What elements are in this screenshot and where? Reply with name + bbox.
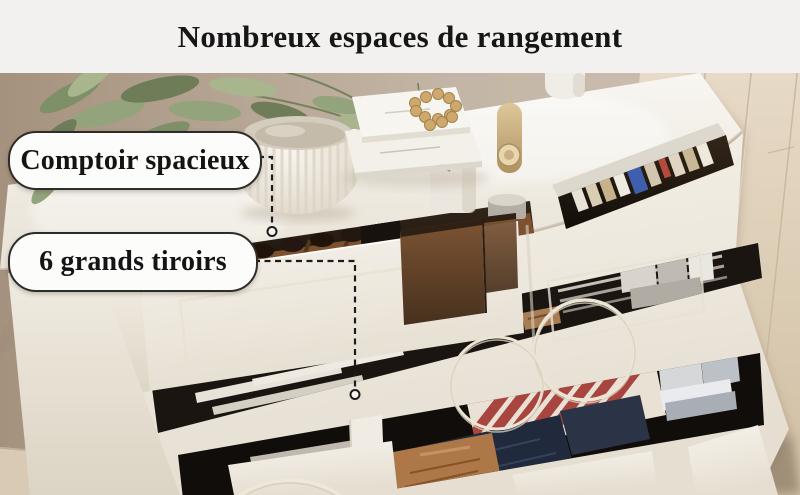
product-image: Nombreux espaces de rangement <box>0 0 800 495</box>
callout-tiroirs-label: 6 grands tiroirs <box>39 246 227 278</box>
white-vase <box>545 73 585 99</box>
callout-comptoir-label: Comptoir spacieux <box>20 145 249 177</box>
callout-6-grands-tiroirs: 6 grands tiroirs <box>8 232 258 292</box>
callout-comptoir-spacieux: Comptoir spacieux <box>8 131 262 190</box>
title-bar: Nombreux espaces de rangement <box>0 0 800 73</box>
page-title: Nombreux espaces de rangement <box>178 19 623 55</box>
